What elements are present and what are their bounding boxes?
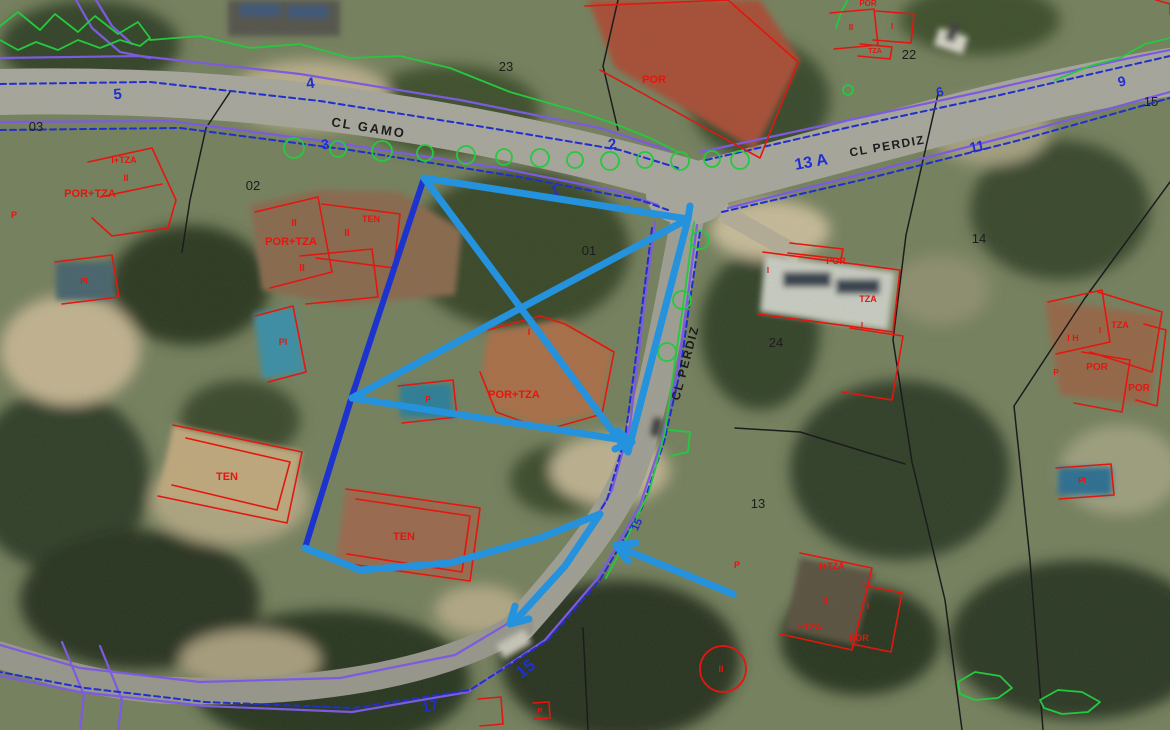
building-use-label: POR [1128,383,1150,394]
building-use-label: II [822,596,828,607]
building-use-label: PI [279,337,288,347]
building-use-label: POR [642,74,666,86]
building-use-label: II [849,23,853,32]
parcel-number: 01 [582,243,596,258]
parcel-number: 03 [29,119,43,134]
building-use-label: TEN [216,471,238,483]
building-use-label: POR [826,256,846,266]
building-use-label: I [867,602,869,611]
building-use-label: TZA [859,294,877,304]
building-use-label: P [1053,368,1059,377]
building-use-label: I+TZA [111,155,137,165]
building-use-label: POR [1086,362,1108,373]
building-use-label: TZA [868,48,882,55]
building-use-label: P [425,395,431,404]
building-use-label: P [538,708,543,715]
parcel-number: 15 [1144,94,1158,109]
building-use-label: I+TZA [819,561,845,571]
building-use-label: POR [849,633,869,643]
building-use-label: PI [1078,476,1086,485]
building-use-label: II [344,228,350,239]
building-use-label: I [891,22,893,31]
parcel-number: 13 [751,496,765,511]
parcel-number: 22 [902,47,916,62]
building-use-label: TEN [393,531,415,543]
building-use-label: II [299,263,305,274]
house-number: 17 [420,697,440,717]
building-use-label: I H [1067,333,1079,343]
house-number: 5 [113,86,123,104]
building-use-label: P [734,560,740,570]
map-canvas: I+TZAIIPOR+TZAPIPIITENPOR+TZAIIIIPIIPOR+… [0,0,1170,730]
building-use-label: POR+TZA [64,188,116,200]
building-use-label: I+TZA [796,622,822,632]
building-use-label: II [718,664,723,674]
building-use-label: I [528,327,531,337]
building-use-label: II [291,218,297,229]
cadastral-map-viewport[interactable]: I+TZAIIPOR+TZAPIPIITENPOR+TZAIIIIPIIPOR+… [0,0,1170,730]
building-use-label: I [861,321,863,330]
building-use-label: I [1099,326,1101,335]
parcel-number: 14 [972,231,986,246]
building-use-label: POR [859,0,877,8]
parcel-number: 24 [769,335,783,350]
building-use-label: POR+TZA [265,236,317,248]
building-use-label: PI [80,277,88,286]
building-use-label: TEN [362,214,380,224]
parcel-number: 02 [246,178,260,193]
aerial-photo-layer [0,0,1170,730]
building-use-label: I [767,266,769,275]
parcel-number: 23 [499,59,513,74]
building-use-label: POR+TZA [488,389,540,401]
building-use-label: II [123,173,128,183]
building-use-label: TZA [1111,320,1129,330]
building-use-label: P [11,210,17,220]
